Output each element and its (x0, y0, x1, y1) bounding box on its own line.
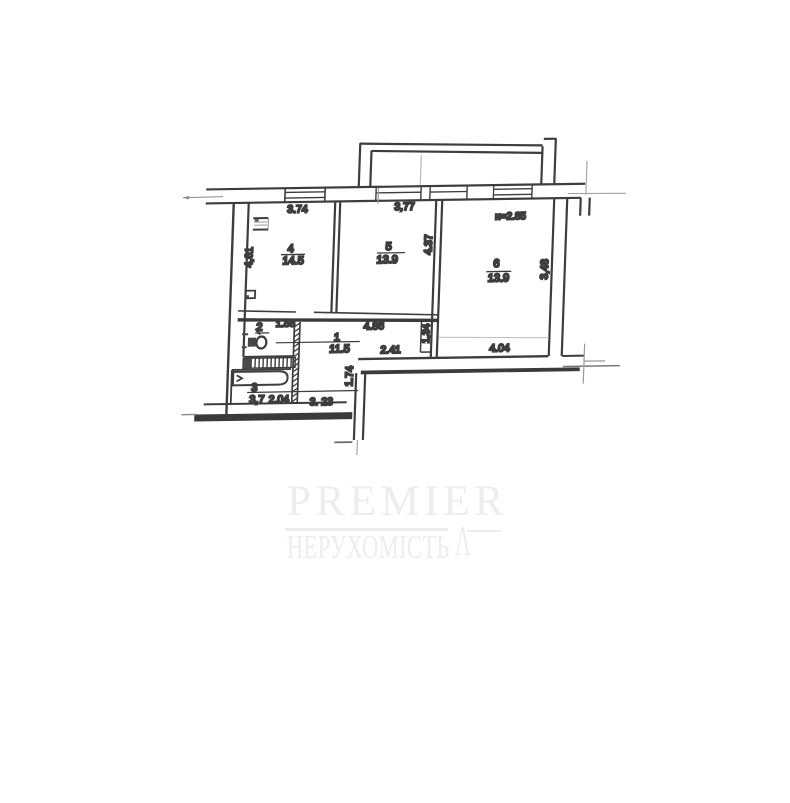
svg-text:4: 4 (287, 243, 294, 255)
svg-text:4.86: 4.86 (363, 320, 384, 332)
svg-text:2.04: 2.04 (268, 394, 289, 406)
svg-text:11.5: 11.5 (329, 343, 350, 355)
svg-text:1: 1 (334, 332, 341, 344)
svg-text:3.74: 3.74 (287, 203, 308, 215)
svg-text:14.5: 14.5 (282, 255, 304, 267)
svg-text:н=2.85: н=2.85 (495, 211, 527, 222)
svg-text:4.37: 4.37 (422, 234, 435, 255)
svg-text:4.04: 4.04 (489, 342, 510, 354)
svg-text:2: 2 (256, 322, 263, 334)
svg-text:6: 6 (493, 258, 500, 270)
svg-text:1,34: 1,34 (421, 323, 433, 343)
svg-text:3,77: 3,77 (394, 201, 415, 213)
svg-text:1.58: 1.58 (276, 319, 296, 330)
svg-text:3. 23: 3. 23 (309, 396, 333, 408)
svg-text:3,7: 3,7 (249, 394, 265, 406)
svg-text:3,48: 3,48 (538, 259, 551, 280)
svg-text:2.41: 2.41 (380, 344, 401, 356)
svg-text:5: 5 (385, 241, 392, 253)
svg-text:4,61: 4,61 (243, 247, 256, 268)
svg-text:13.9: 13.9 (376, 254, 398, 266)
svg-text:1.74: 1.74 (343, 366, 356, 387)
svg-text:3: 3 (251, 382, 258, 394)
svg-text:13.9: 13.9 (488, 272, 510, 284)
